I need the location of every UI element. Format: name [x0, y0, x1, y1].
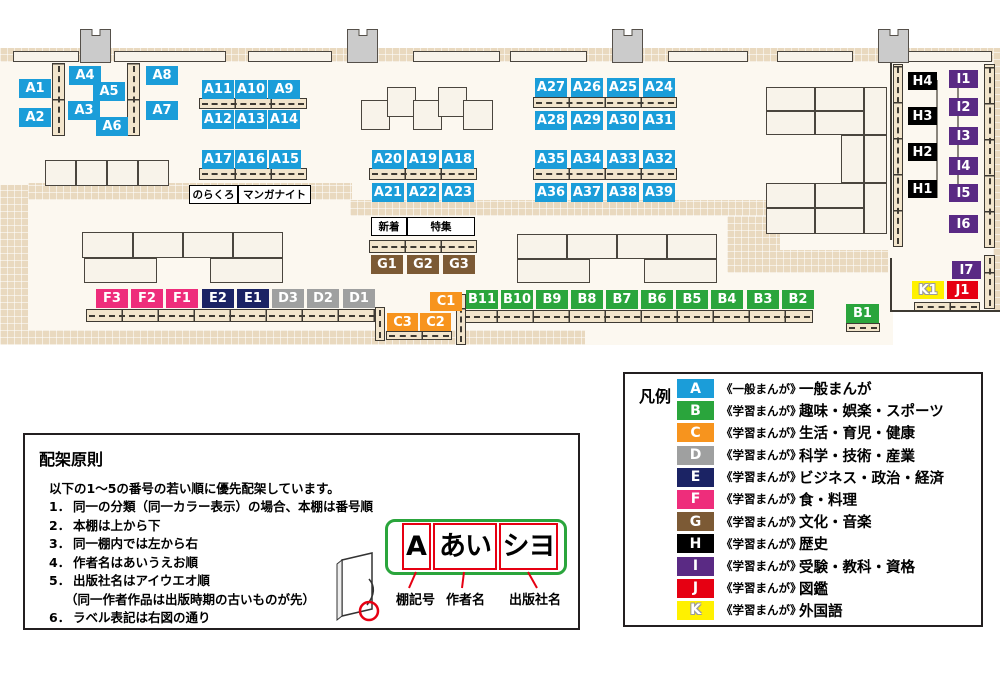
bookshelf-horizontal — [914, 302, 980, 311]
shelf-label-I7: I7 — [952, 261, 981, 279]
shelf-label-A2: A2 — [19, 108, 51, 127]
legend-title: 凡例 — [639, 383, 671, 407]
legend-row-I: I《学習まんが》受験・教科・資格 — [677, 557, 944, 576]
shelf-label-H1: H1 — [908, 180, 937, 198]
shelf-label-A33: A33 — [607, 150, 639, 169]
legend-row-D: D《学習まんが》科学・技術・産業 — [677, 446, 944, 465]
table-block — [617, 234, 667, 259]
shelf-label-A24: A24 — [643, 78, 675, 97]
table-block — [815, 87, 864, 111]
legend-series: 《学習まんが》 — [721, 425, 799, 441]
shelf-label-A37: A37 — [571, 183, 603, 202]
shelf-label-A31: A31 — [643, 111, 675, 130]
table-block — [777, 51, 853, 62]
table-block — [510, 51, 587, 62]
shelf-label-I5: I5 — [949, 184, 978, 202]
table-block — [864, 135, 887, 183]
shelf-label-E1: E1 — [237, 289, 269, 308]
shelf-label-I1: I1 — [949, 70, 978, 88]
shelf-label-B8: B8 — [571, 290, 603, 309]
shelf-label-A30: A30 — [607, 111, 639, 130]
principle-item-0: 1．同一の分類（同一カラー表示）の場合、本棚は番号順 — [49, 498, 373, 517]
shelf-label-B3: B3 — [747, 290, 779, 309]
shelf-label-B2: B2 — [782, 290, 814, 309]
legend-row-E: E《学習まんが》ビジネス・政治・経済 — [677, 468, 944, 487]
bookshelf-horizontal — [369, 240, 477, 253]
shelf-label-A17: A17 — [202, 150, 234, 169]
map-annotation-0: のらくろ — [189, 185, 238, 204]
legend-chip-J: J — [677, 579, 714, 598]
bookshelf-horizontal — [386, 331, 452, 340]
shelf-label-E2: E2 — [202, 289, 234, 308]
table-block — [864, 87, 887, 135]
legend-chip-G: G — [677, 512, 714, 531]
legend-category: 図鑑 — [799, 578, 828, 599]
wall-segment — [890, 62, 892, 240]
table-block — [815, 208, 864, 234]
shelf-label-B11: B11 — [466, 290, 498, 309]
legend-series: 《学習まんが》 — [721, 558, 799, 574]
bookshelf-vertical — [375, 307, 385, 341]
legend-row-A: A《一般まんが》一般まんが — [677, 379, 944, 398]
legend-category: 一般まんが — [799, 378, 872, 399]
legend-category: 科学・技術・産業 — [799, 445, 915, 466]
principle-number: 1． — [49, 498, 73, 517]
table-block — [114, 51, 226, 62]
table-block — [248, 51, 332, 62]
legend-chip-F: F — [677, 490, 714, 509]
shelf-label-A27: A27 — [535, 78, 567, 97]
legend-series: 《学習まんが》 — [721, 536, 799, 552]
legend-rows: A《一般まんが》一般まんがB《学習まんが》趣味・娯楽・スポーツC《学習まんが》生… — [677, 379, 944, 623]
legend-series: 《学習まんが》 — [721, 602, 799, 618]
shelf-label-B5: B5 — [676, 290, 708, 309]
pillar-notch — [889, 29, 898, 36]
pillar — [612, 29, 643, 63]
legend-category: 食・料理 — [799, 489, 857, 510]
table-block — [841, 135, 864, 183]
principle-text: ラベル表記は右図の通り — [73, 610, 211, 625]
legend-box: 凡例 A《一般まんが》一般まんがB《学習まんが》趣味・娯楽・スポーツC《学習まん… — [623, 372, 983, 627]
shelf-label-A7: A7 — [146, 101, 178, 120]
legend-series: 《学習まんが》 — [721, 580, 799, 596]
principle-number: 2． — [49, 517, 73, 536]
principle-item-1: 2．本棚は上から下 — [49, 517, 373, 536]
table-block — [864, 183, 887, 234]
table-block — [45, 160, 76, 186]
legend-row-C: C《学習まんが》生活・育児・健康 — [677, 423, 944, 442]
legend-row-H: H《学習まんが》歴史 — [677, 534, 944, 553]
table-block — [667, 234, 717, 259]
bookshelf-vertical — [893, 64, 903, 247]
table-block — [387, 87, 416, 117]
table-block — [644, 259, 717, 283]
table-block — [84, 258, 157, 283]
shelf-label-D2: D2 — [307, 289, 339, 308]
shelf-label-H3: H3 — [908, 107, 937, 125]
pillar-notch — [623, 29, 632, 36]
bookshelf-vertical — [984, 64, 995, 248]
principle-number: 6． — [49, 609, 73, 628]
table-block — [517, 234, 567, 259]
table-block — [815, 111, 864, 135]
shelf-label-A16: A16 — [235, 150, 267, 169]
principle-number: 3． — [49, 535, 73, 554]
table-block — [766, 111, 815, 135]
pillar-notch — [358, 29, 367, 36]
principle-text: （同一作者作品は出版時期の古いものが先） — [65, 592, 315, 607]
shelf-label-G3: G3 — [443, 255, 475, 274]
shelf-label-B6: B6 — [641, 290, 673, 309]
table-block — [233, 232, 283, 258]
table-block — [107, 160, 138, 186]
shelf-label-A12: A12 — [202, 110, 234, 129]
legend-series: 《学習まんが》 — [721, 514, 799, 530]
floor-hatch-band — [0, 185, 28, 345]
shelf-label-A23: A23 — [442, 183, 474, 202]
shelf-label-F3: F3 — [96, 289, 128, 308]
shelf-label-D3: D3 — [272, 289, 304, 308]
shelf-label-I2: I2 — [949, 98, 978, 116]
shelf-label-A14: A14 — [268, 110, 300, 129]
legend-series: 《学習まんが》 — [721, 491, 799, 507]
shelf-label-A35: A35 — [535, 150, 567, 169]
principle-number: 5． — [49, 572, 73, 591]
legend-category: 歴史 — [799, 533, 828, 554]
principle-text: 同一の分類（同一カラー表示）の場合、本棚は番号順 — [73, 499, 373, 514]
shelf-label-C1: C1 — [430, 292, 462, 311]
table-block — [210, 258, 283, 283]
shelf-label-F2: F2 — [131, 289, 163, 308]
pillar-notch — [91, 29, 100, 36]
shelf-label-B4: B4 — [711, 290, 743, 309]
table-block — [138, 160, 169, 186]
wall-segment — [890, 258, 892, 312]
shelf-label-A1: A1 — [19, 79, 51, 98]
bookshelf-horizontal — [86, 309, 378, 322]
shelf-label-A13: A13 — [235, 110, 267, 129]
bookshelf-horizontal — [846, 323, 880, 332]
shelf-label-G2: G2 — [407, 255, 439, 274]
bookshelf-horizontal — [199, 168, 307, 180]
shelf-label-B10: B10 — [501, 290, 533, 309]
bookshelf-horizontal — [533, 97, 677, 108]
shelf-label-A11: A11 — [202, 80, 234, 99]
shelf-label-F1: F1 — [166, 289, 198, 308]
principles-intro: 以下の1～5の番号の若い順に優先配架しています。 — [49, 478, 340, 497]
shelf-label-C3: C3 — [387, 313, 418, 331]
shelf-label-A9: A9 — [268, 80, 300, 99]
shelf-label-A19: A19 — [407, 150, 439, 169]
table-block — [76, 160, 107, 186]
bookshelf-vertical — [127, 63, 140, 136]
principle-number: 4． — [49, 554, 73, 573]
table-block — [183, 232, 233, 258]
shelf-label-A25: A25 — [607, 78, 639, 97]
legend-chip-H: H — [677, 534, 714, 553]
shelf-label-I4: I4 — [949, 157, 978, 175]
shelf-label-H2: H2 — [908, 143, 937, 161]
table-block — [766, 87, 815, 111]
shelf-label-D1: D1 — [343, 289, 375, 308]
legend-series: 《学習まんが》 — [721, 403, 799, 419]
map-annotation-2: 新着 — [371, 217, 407, 236]
shelf-label-K1: K1 — [912, 281, 944, 299]
bookshelf-horizontal — [533, 168, 677, 180]
shelf-label-A39: A39 — [643, 183, 675, 202]
bookshelf-vertical — [984, 255, 995, 309]
shelf-label-A28: A28 — [535, 111, 567, 130]
legend-chip-D: D — [677, 446, 714, 465]
map-annotation-3: 特集 — [407, 217, 475, 236]
principle-text: 出版社名はアイウエオ順 — [73, 573, 210, 588]
legend-chip-K: K — [677, 601, 714, 620]
shelf-label-B7: B7 — [606, 290, 638, 309]
legend-row-F: F《学習まんが》食・料理 — [677, 490, 944, 509]
legend-category: 文化・音楽 — [799, 511, 872, 532]
legend-series: 《学習まんが》 — [721, 447, 799, 463]
shelf-label-A20: A20 — [372, 150, 404, 169]
shelf-label-A29: A29 — [571, 111, 603, 130]
shelf-label-A8: A8 — [146, 66, 178, 85]
legend-series: 《一般まんが》 — [721, 381, 799, 397]
table-block — [82, 232, 133, 258]
shelf-label-A10: A10 — [235, 80, 267, 99]
pillar — [347, 29, 378, 63]
table-block — [517, 259, 590, 283]
shelf-label-B9: B9 — [536, 290, 568, 309]
shelf-label-B1: B1 — [846, 304, 879, 323]
legend-chip-C: C — [677, 423, 714, 442]
shelf-label-A22: A22 — [407, 183, 439, 202]
table-block — [567, 234, 617, 259]
legend-category: 生活・育児・健康 — [799, 422, 915, 443]
table-block — [133, 232, 183, 258]
bookshelf-horizontal — [369, 168, 477, 180]
bookshelf-horizontal — [199, 98, 307, 109]
legend-chip-E: E — [677, 468, 714, 487]
table-block — [815, 183, 864, 208]
table-block — [463, 100, 493, 130]
principle-text: 同一棚内では左から右 — [73, 536, 198, 551]
shelf-label-A18: A18 — [442, 150, 474, 169]
shelf-label-A15: A15 — [269, 150, 301, 169]
legend-category: 趣味・娯楽・スポーツ — [799, 400, 944, 421]
bookshelf-vertical — [52, 63, 65, 136]
floor-hatch-band — [28, 330, 585, 345]
legend-series: 《学習まんが》 — [721, 469, 799, 485]
legend-category: 外国語 — [799, 600, 843, 621]
legend-row-B: B《学習まんが》趣味・娯楽・スポーツ — [677, 401, 944, 420]
table-block — [766, 183, 815, 208]
principles-title: 配架原則 — [39, 446, 103, 470]
legend-chip-B: B — [677, 401, 714, 420]
legend-category: ビジネス・政治・経済 — [799, 467, 944, 488]
pillar — [878, 29, 909, 63]
legend-chip-A: A — [677, 379, 714, 398]
table-block — [668, 51, 748, 62]
legend-category: 受験・教科・資格 — [799, 556, 915, 577]
legend-row-J: J《学習まんが》図鑑 — [677, 579, 944, 598]
pillar — [80, 29, 111, 63]
legend-row-G: G《学習まんが》文化・音楽 — [677, 512, 944, 531]
shelf-label-I3: I3 — [949, 127, 978, 145]
bookshelf-horizontal — [461, 310, 813, 323]
legend-chip-I: I — [677, 557, 714, 576]
shelf-label-A26: A26 — [571, 78, 603, 97]
book-illustration — [325, 540, 585, 630]
shelf-label-H4: H4 — [908, 72, 937, 90]
shelf-label-I6: I6 — [949, 215, 978, 233]
table-block — [413, 51, 500, 62]
shelf-label-J1: J1 — [947, 281, 978, 299]
table-block — [361, 100, 390, 130]
shelf-label-G1: G1 — [371, 255, 403, 274]
table-block — [13, 51, 79, 62]
table-block — [903, 51, 992, 62]
shelf-label-A32: A32 — [643, 150, 675, 169]
floor-hatch-band — [350, 200, 780, 216]
principle-text: 本棚は上から下 — [73, 518, 161, 533]
table-block — [766, 208, 815, 234]
legend-row-K: K《学習まんが》外国語 — [677, 601, 944, 620]
shelf-label-A21: A21 — [372, 183, 404, 202]
shelf-label-A34: A34 — [571, 150, 603, 169]
shelf-label-A36: A36 — [535, 183, 567, 202]
shelf-label-A38: A38 — [607, 183, 639, 202]
principle-text: 作者名はあいうえお順 — [73, 555, 198, 570]
shelf-label-A5: A5 — [93, 82, 125, 101]
shelf-label-A6: A6 — [96, 117, 128, 136]
floor-hatch-band — [727, 250, 888, 273]
shelf-label-C2: C2 — [420, 313, 451, 331]
map-annotation-1: マンガナイト — [238, 185, 311, 204]
